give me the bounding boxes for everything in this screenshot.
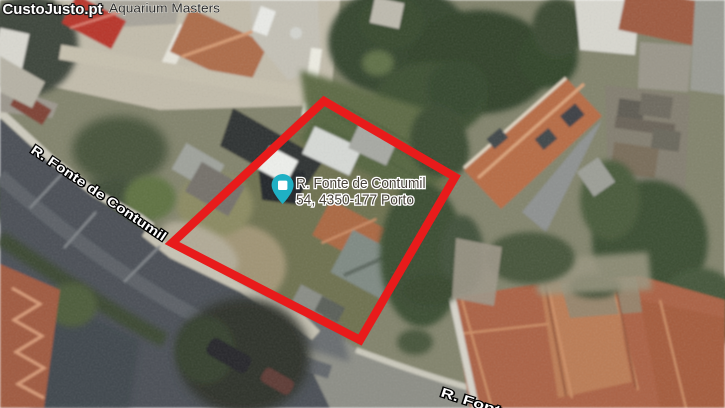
svg-text:Aquarium Masters: Aquarium Masters: [109, 1, 221, 16]
svg-text:CustoJusto.pt: CustoJusto.pt: [3, 1, 103, 18]
svg-text:54, 4350-177 Porto: 54, 4350-177 Porto: [296, 193, 414, 209]
svg-text:R. Fonte de Contumil: R. Fonte de Contumil: [296, 176, 426, 192]
